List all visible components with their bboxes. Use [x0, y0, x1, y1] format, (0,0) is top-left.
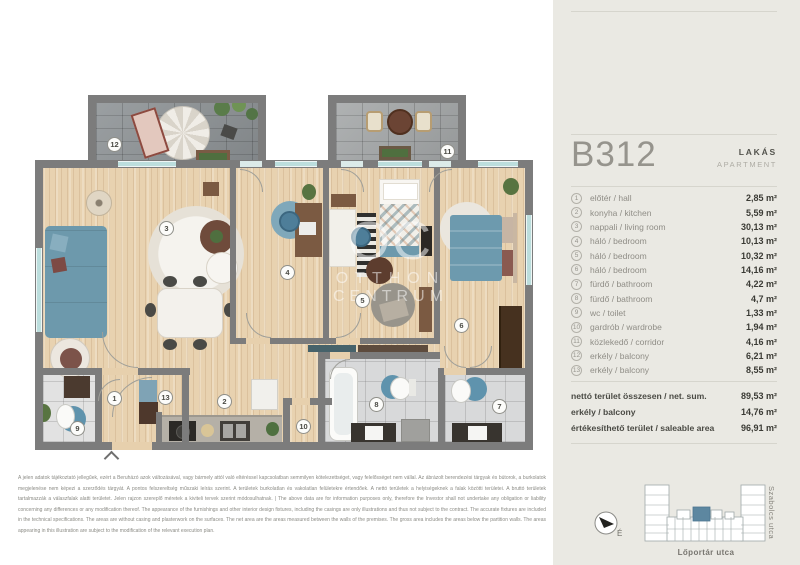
bistro-chair-left: [366, 111, 383, 132]
bath8-toilet-tank: [409, 379, 416, 396]
totals: nettó terület összesen / net. sum.89,53 …: [571, 388, 777, 436]
bed5-nightstand: [421, 226, 432, 256]
door-gap-entrance: [112, 442, 152, 450]
plan-label-9: 9: [70, 421, 85, 436]
room-name: előtér / hall: [590, 193, 746, 203]
divider-below-totals: [571, 443, 777, 444]
divider-below-title: [571, 186, 777, 187]
room-name: fürdő / bathroom: [590, 294, 751, 304]
room-name: közlekedő / corridor: [590, 337, 746, 347]
street-label-szabolcs: Szabolcs utca: [767, 486, 776, 550]
unit-id: B312: [571, 135, 657, 175]
room-num-badge: 10: [571, 322, 582, 333]
room-row-13: 13erkély / balcony8,55 m²: [571, 363, 777, 377]
room-name: gardrób / wardrobe: [590, 322, 746, 332]
window-bed4: [275, 161, 317, 167]
bed6-plant: [503, 178, 519, 195]
wall-wc-hall: [95, 375, 102, 442]
shower-mat: [401, 419, 430, 442]
plan-label-13: 13: [158, 390, 173, 405]
total-balcony-value: 14,76 m²: [741, 407, 777, 417]
window-living-side: [36, 248, 42, 332]
dining-table: [157, 288, 223, 338]
info-panel: B312 LAKÁS APARTMENT 1előtér / hall2,85 …: [553, 0, 800, 565]
wall-wardrobe-left: [283, 398, 290, 442]
corridor-runner-rug: [308, 345, 356, 352]
wall-hall-stub: [156, 412, 162, 442]
bed5-foot-blanket: [380, 246, 419, 257]
bath8-vanity: [351, 423, 396, 442]
bed6-duvet: [450, 215, 502, 281]
pouf: [371, 283, 415, 327]
counter-plant: [266, 422, 279, 436]
plan-label-3: 3: [159, 221, 174, 236]
total-saleable: értékesíthető terület / saleable area96,…: [571, 420, 777, 436]
total-saleable-label: értékesíthető terület / saleable area: [571, 423, 741, 433]
wall-hall-kitchen: [182, 375, 189, 442]
plan-label-5: 5: [355, 293, 370, 308]
room-area: 4,22 m²: [746, 279, 777, 289]
door-gap-terrace-living: [240, 161, 262, 167]
wall-bath7-left: [438, 368, 445, 442]
bed6-bed: [450, 213, 517, 283]
bed5-shelf: [331, 194, 356, 207]
room-name: fürdő / bathroom: [590, 279, 746, 289]
plan-label-11: 11: [440, 144, 455, 159]
divider-top: [571, 11, 777, 12]
door-gap-terrace-bed6: [429, 161, 451, 167]
door-gap-wardrobe: [292, 398, 310, 405]
balcony-right-wall-l: [328, 95, 336, 168]
room-row-10: 10gardrób / wardrobe1,94 m²: [571, 320, 777, 334]
room-name: nappali / living room: [590, 222, 741, 232]
kitchen-counter: [160, 415, 282, 442]
room-name: háló / bedroom: [590, 265, 741, 275]
room-num-badge: 7: [571, 279, 582, 290]
wall-bath8-left: [318, 352, 325, 442]
sofa-cushion-red: [51, 257, 67, 273]
room-row-2: 2konyha / kitchen5,59 m²: [571, 205, 777, 219]
room-area: 4,16 m²: [746, 337, 777, 347]
dining-chair-4: [193, 339, 207, 350]
room-num-badge: 3: [571, 221, 582, 232]
unit-type-en: APARTMENT: [717, 160, 777, 169]
window-living: [118, 161, 176, 167]
divider-above-totals: [571, 381, 777, 382]
highlighted-unit: [693, 507, 710, 521]
bath7-toilet: [451, 379, 471, 403]
room-area: 8,55 m²: [746, 365, 777, 375]
sofa: [45, 226, 107, 338]
disclaimer-text: A jelen adatok tájékoztató jellegűek, ez…: [18, 473, 546, 537]
room-name: konyha / kitchen: [590, 208, 746, 218]
room-name: háló / bedroom: [590, 236, 741, 246]
street-label-loportar: Lőportár utca: [639, 548, 773, 557]
plan-label-6: 6: [454, 318, 469, 333]
room-num-badge: 4: [571, 236, 582, 247]
room-area: 2,85 m²: [746, 193, 777, 203]
window-bed6-side: [526, 215, 532, 285]
bed5-pillow: [383, 183, 418, 200]
room-row-7: 7fürdő / bathroom4,22 m²: [571, 277, 777, 291]
dining-chair-3: [163, 339, 177, 350]
sofa-cushion-light: [50, 234, 69, 253]
total-net-label: nettó terület összesen / net. sum.: [571, 391, 741, 401]
plan-label-10: 10: [296, 419, 311, 434]
floorplan-page: OC OTTHON CENTRUM 1 2 3 4 5 6 7 8 9 10 1…: [0, 0, 800, 565]
balcony-right-wall-r: [458, 95, 466, 168]
hall-dark-mat: [64, 376, 90, 398]
room-num-badge: 12: [571, 350, 582, 361]
bed5-bed: [379, 179, 420, 257]
total-balcony: erkély / balcony14,76 m²: [571, 404, 777, 420]
bed5-chair: [351, 227, 371, 247]
plan-label-2: 2: [217, 394, 232, 409]
fridge: [251, 379, 278, 410]
side-table-top: [203, 182, 219, 196]
door-gap-hall: [102, 368, 138, 375]
room-area: 1,33 m²: [746, 308, 777, 318]
bath7-sink: [468, 426, 487, 440]
dining-chair-5: [145, 303, 156, 317]
total-net-value: 89,53 m²: [741, 391, 777, 401]
balcony-left-wall-l: [88, 95, 96, 168]
room-area: 6,21 m²: [746, 351, 777, 361]
room-num-badge: 2: [571, 207, 582, 218]
bed4-desk: [295, 203, 322, 257]
door-gap-bed4: [246, 338, 270, 344]
room-name: erkély / balcony: [590, 351, 746, 361]
balcony-left-wall-r: [258, 95, 266, 168]
wall-bed4-bed5: [323, 168, 329, 338]
door-gap-bed5: [336, 338, 360, 344]
compass-north-label: É: [617, 529, 622, 538]
total-saleable-value: 96,91 m²: [741, 423, 777, 433]
room-row-8: 8fürdő / bathroom4,7 m²: [571, 291, 777, 305]
bath8-sink: [365, 426, 383, 440]
bed5-side-table: [366, 257, 393, 284]
room-row-9: 9wc / toilet1,33 m²: [571, 306, 777, 320]
room-area: 1,94 m²: [746, 322, 777, 332]
wall-right: [525, 160, 533, 450]
laptop: [299, 222, 316, 235]
balcony-plant-3: [246, 108, 258, 120]
bath8-toilet: [390, 377, 416, 398]
room-num-badge: 6: [571, 264, 582, 275]
wall-bottom: [35, 442, 533, 450]
plan-label-4: 4: [280, 265, 295, 280]
bed5-wall-shelf: [419, 287, 432, 332]
unit-type: LAKÁS APARTMENT: [717, 147, 777, 169]
room-num-badge: 1: [571, 193, 582, 204]
window-bed5: [378, 161, 422, 167]
door-gap-terrace-bed5: [341, 161, 363, 167]
dining-chair-2: [193, 276, 207, 287]
bed4-chair: [279, 211, 300, 232]
sink-basin-right: [236, 424, 246, 438]
balcony-right-wall-top: [328, 95, 466, 103]
room-name: háló / bedroom: [590, 251, 741, 261]
bistro-table: [387, 109, 413, 135]
coffee-table-dark: [200, 220, 234, 254]
room-row-6: 6háló / bedroom14,16 m²: [571, 263, 777, 277]
pouf-throw: [379, 298, 409, 322]
door-gap-bed6: [444, 368, 466, 375]
room-list: 1előtér / hall2,85 m² 2konyha / kitchen5…: [571, 191, 777, 377]
dining-chair-1: [163, 276, 177, 287]
entrance-arrow-icon: [104, 451, 120, 467]
bath8-toilet-bowl: [390, 377, 411, 400]
room-num-badge: 5: [571, 250, 582, 261]
room-row-4: 4háló / bedroom10,13 m²: [571, 234, 777, 248]
room-num-badge: 11: [571, 336, 582, 347]
room-num-badge: 13: [571, 365, 582, 376]
bath7-vanity: [452, 423, 502, 442]
room-row-11: 11közlekedő / corridor4,16 m²: [571, 334, 777, 348]
wall-living-bed4: [230, 168, 236, 338]
site-plan-map: [641, 483, 771, 547]
wall-bed5-bed6: [434, 168, 440, 338]
room-area: 5,59 m²: [746, 208, 777, 218]
room-num-badge: 8: [571, 293, 582, 304]
bed6-headboard: [513, 213, 517, 283]
room-area: 14,16 m²: [741, 265, 777, 275]
door-gap-bath8: [330, 352, 350, 359]
armchair-cushion: [60, 348, 82, 370]
plan-label-1: 1: [107, 391, 122, 406]
room-area: 10,13 m²: [741, 236, 777, 246]
total-net: nettó terület összesen / net. sum.89,53 …: [571, 388, 777, 404]
room-area: 4,7 m²: [751, 294, 777, 304]
plan-label-8: 8: [369, 397, 384, 412]
room-row-5: 5háló / bedroom10,32 m²: [571, 248, 777, 262]
room-row-1: 1előtér / hall2,85 m²: [571, 191, 777, 205]
sink-basin-left: [223, 424, 233, 438]
plan-label-12: 12: [107, 137, 122, 152]
room-name: wc / toilet: [590, 308, 746, 318]
bed6-wardrobe: [499, 306, 522, 370]
corridor-door-mat: [358, 345, 428, 352]
total-balcony-label: erkély / balcony: [571, 407, 741, 417]
plan-label-7: 7: [492, 399, 507, 414]
window-bed6: [478, 161, 518, 167]
room-area: 30,13 m²: [741, 222, 777, 232]
room-row-12: 12erkély / balcony6,21 m²: [571, 349, 777, 363]
coffee-table-plant: [210, 230, 223, 243]
cutting-board: [201, 424, 214, 437]
planter-box-right: [379, 146, 411, 160]
bed4-plant: [302, 184, 316, 200]
unit-type-hu: LAKÁS: [717, 147, 777, 157]
floor-plan: OC OTTHON CENTRUM 1 2 3 4 5 6 7 8 9 10 1…: [0, 0, 553, 470]
bistro-chair-right: [415, 111, 432, 132]
room-num-badge: 9: [571, 307, 582, 318]
floor-lamp: [86, 190, 112, 216]
room-area: 10,32 m²: [741, 251, 777, 261]
room-row-3: 3nappali / living room30,13 m²: [571, 220, 777, 234]
balcony-left-wall-top: [88, 95, 266, 103]
room-name: erkély / balcony: [590, 365, 746, 375]
